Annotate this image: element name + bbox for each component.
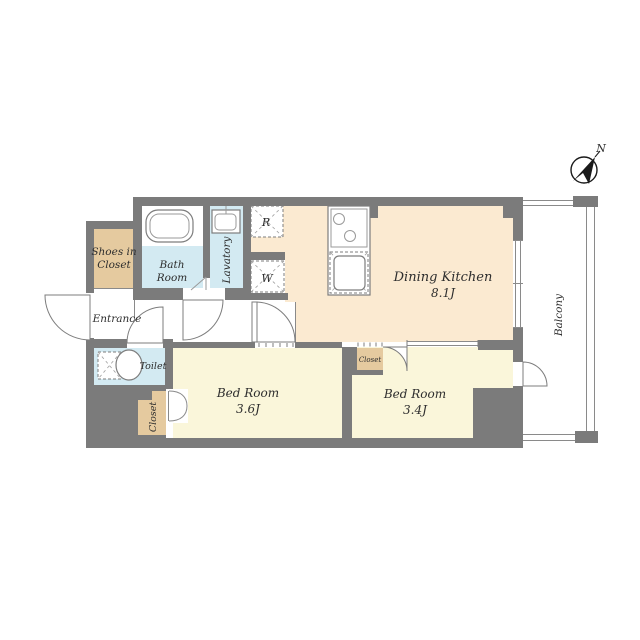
- lavatory-label: Lavatory: [221, 235, 233, 284]
- wall-refrigerator-washer-divider: [243, 252, 285, 260]
- wall-below-closet-36: [138, 435, 166, 448]
- dining-kitchen-floor-upper: [285, 206, 513, 302]
- wall-closet-34-bottom: [352, 370, 383, 375]
- wall-right-mid: [513, 328, 523, 362]
- dining-kitchen-window: [513, 240, 523, 328]
- bedroom-36-area: 3.6J: [236, 402, 261, 416]
- wall-bottom-left-block: [86, 390, 138, 448]
- wall-bedroom-34-top-right: [478, 340, 513, 350]
- balcony-label: Balcony: [553, 293, 565, 337]
- wall-between-bedrooms: [342, 347, 352, 438]
- dining-kitchen-label: Dining Kitchen: [393, 270, 493, 285]
- bathroom-label-line2: Room: [156, 272, 188, 284]
- compass: N: [571, 142, 606, 184]
- refrigerator-mark: R: [261, 216, 270, 229]
- floor-plan-page: Dining Kitchen 8.1J Bed Room 3.6J Bed Ro…: [0, 0, 640, 640]
- balcony-top-pier: [573, 196, 598, 207]
- washer-mark: W: [261, 272, 274, 285]
- wall-hall-top-right: [225, 288, 251, 300]
- lavatory-door-swing: [183, 300, 223, 340]
- balcony-bottom-pier: [575, 431, 598, 443]
- dining-kitchen-area: 8.1J: [431, 286, 456, 300]
- bedroom-34-label: Bed Room: [383, 387, 446, 401]
- compass-north-label: N: [595, 142, 606, 155]
- toilet-label: Toilet: [140, 361, 167, 372]
- closet-36-label: Closet: [148, 402, 159, 433]
- closet-34-front-ticks: [358, 343, 382, 347]
- wall-above-closet-36: [138, 390, 152, 400]
- bedroom-34-sliding-partition: [407, 340, 478, 347]
- wall-hall-top-left: [133, 288, 183, 300]
- bedroom-36-label: Bed Room: [216, 386, 279, 400]
- bedroom-36-door-threshold-ticks: [259, 343, 293, 347]
- shoes-in-closet-label-line2: Closet: [97, 259, 131, 271]
- kitchen-sink: [334, 256, 365, 290]
- wall-top: [133, 197, 523, 206]
- wall-bedroom-36-top-right: [295, 342, 342, 348]
- wall-right-upper: [513, 206, 523, 240]
- bedroom-34-area: 3.4J: [403, 403, 428, 417]
- toilet-bowl: [116, 350, 142, 380]
- closet-34-label: Closet: [359, 356, 382, 364]
- shoes-in-closet-label-line1: Shoes in: [91, 246, 137, 258]
- entrance-label: Entrance: [92, 313, 142, 325]
- front-door-swing: [45, 295, 90, 340]
- balcony-door-swing: [523, 362, 547, 386]
- bedroom-36-door-leaf: [252, 302, 257, 342]
- wall-bedroom-36-top: [165, 342, 255, 348]
- closet-36-bifold-doors: [166, 389, 188, 423]
- bedroom-36-door-swing: [257, 302, 295, 342]
- bathroom-label-line1: Bath: [159, 259, 185, 271]
- dining-kitchen-floor-lower: [295, 302, 513, 342]
- bathtub: [146, 210, 193, 242]
- wall-bath-lavatory-divider: [203, 206, 210, 278]
- floor-plan: Dining Kitchen 8.1J Bed Room 3.6J Bed Ro…: [0, 0, 640, 640]
